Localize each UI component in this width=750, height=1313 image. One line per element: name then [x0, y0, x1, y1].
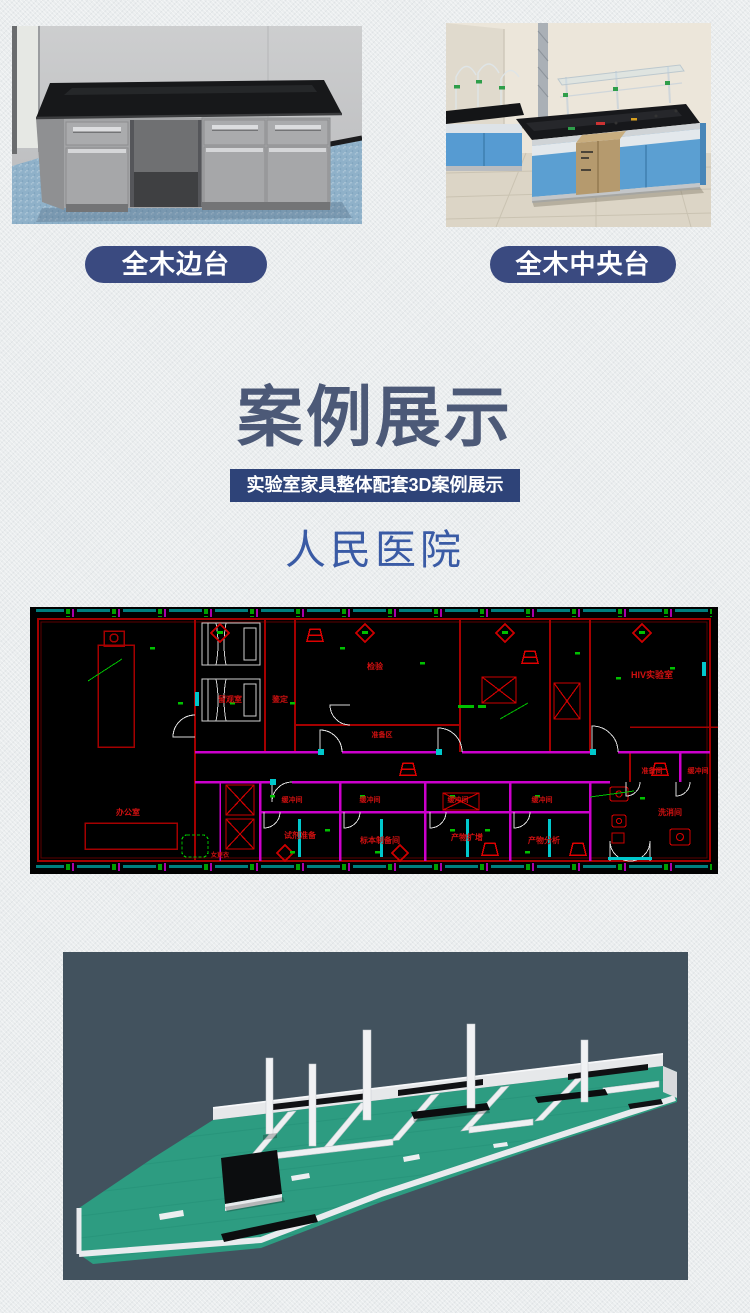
room-label: 试剂准备 [284, 830, 317, 840]
case-title: 人民医院 [0, 530, 750, 571]
buffer-room-label: 缓冲间 [531, 795, 553, 804]
room-label: 标本制备间 [359, 835, 400, 845]
doorway [17, 26, 39, 148]
truss-column [538, 23, 548, 117]
room-label: 鉴定 [271, 694, 288, 704]
cardboard-box [576, 131, 626, 195]
section-title: 案例展示 [0, 384, 750, 450]
room-label: HIV实验室 [631, 669, 673, 680]
lab-side-bench [36, 80, 342, 212]
window-band-bottom [36, 863, 712, 871]
room-label: 女更衣 [211, 851, 229, 859]
buffer-room-label: 缓冲间 [359, 795, 381, 804]
cad-floorplan: 留观室 鉴定 检验 准备区 HIV实验室 办公室 试剂准备 标本制备间 产物扩增… [30, 607, 718, 874]
room-label: 产物分析 [528, 835, 560, 845]
door-gap [12, 26, 17, 154]
window-band-top [36, 609, 712, 617]
product-photo-side-bench [12, 26, 362, 224]
buffer-room-label: 缓冲间 [687, 766, 709, 775]
buffer-room-label: 缓冲间 [447, 795, 469, 804]
room-label: 留观室 [218, 694, 242, 704]
room-label: 检验 [367, 661, 384, 671]
badge-side-bench: 全木边台 [85, 246, 267, 283]
product-photo-central-bench [446, 23, 711, 227]
badge-central-bench: 全木中央台 [490, 246, 676, 283]
room-label: 办公室 [116, 807, 140, 817]
room-label: 准备间 [642, 766, 663, 775]
room-label: 准备区 [372, 730, 393, 739]
side-bench [446, 103, 524, 171]
render-3d [63, 952, 688, 1280]
room-label: 洗消间 [658, 807, 682, 817]
product-detail-page: 全木边台 全木中央台 案例展示 实验室家具整体配套3D案例展示 人民医院 [0, 0, 750, 1313]
section-subtitle-bar: 实验室家具整体配套3D案例展示 [230, 469, 520, 502]
room-label: 产物扩增 [451, 832, 483, 842]
buffer-room-label: 缓冲间 [281, 795, 303, 804]
